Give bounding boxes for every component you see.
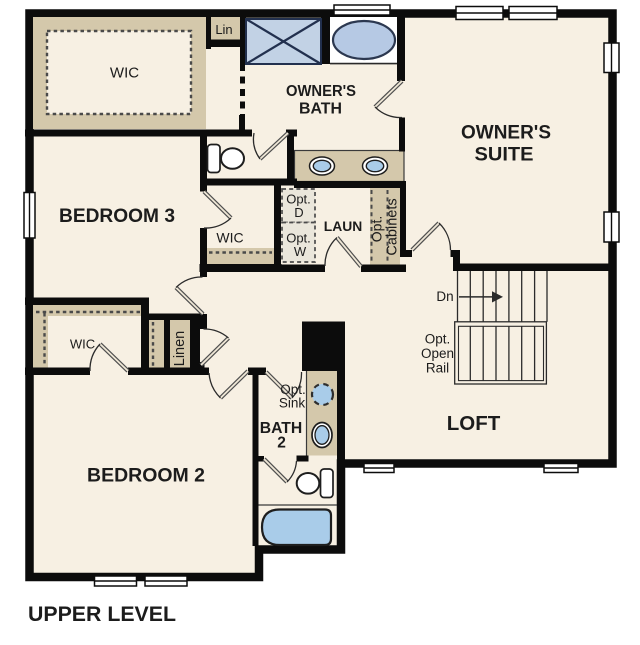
svg-text:WIC: WIC [110, 65, 139, 82]
svg-text:Rail: Rail [426, 361, 449, 376]
svg-text:Lin: Lin [215, 22, 232, 37]
svg-text:Sink: Sink [279, 396, 306, 411]
svg-text:LOFT: LOFT [447, 412, 501, 435]
svg-text:LAUN: LAUN [324, 218, 363, 234]
svg-text:BATH: BATH [299, 100, 342, 117]
svg-text:Opt.: Opt. [425, 332, 451, 347]
svg-text:Dn: Dn [436, 289, 453, 304]
svg-text:BEDROOM 3: BEDROOM 3 [59, 205, 175, 227]
svg-text:WIC: WIC [70, 337, 95, 352]
svg-text:Opt.: Opt. [369, 216, 385, 242]
svg-text:D: D [294, 205, 303, 220]
svg-text:BEDROOM 2: BEDROOM 2 [87, 465, 205, 487]
svg-text:OWNER'S: OWNER'S [461, 122, 551, 143]
svg-text:Open: Open [421, 346, 454, 361]
svg-text:SUITE: SUITE [475, 144, 534, 165]
svg-text:Linen: Linen [172, 331, 188, 366]
svg-text:Cabinets: Cabinets [385, 198, 401, 255]
svg-text:WIC: WIC [216, 230, 243, 246]
svg-text:W: W [294, 244, 307, 259]
svg-text:UPPER LEVEL: UPPER LEVEL [28, 602, 176, 626]
svg-text:2: 2 [277, 435, 286, 452]
svg-text:OWNER'S: OWNER'S [286, 83, 356, 100]
